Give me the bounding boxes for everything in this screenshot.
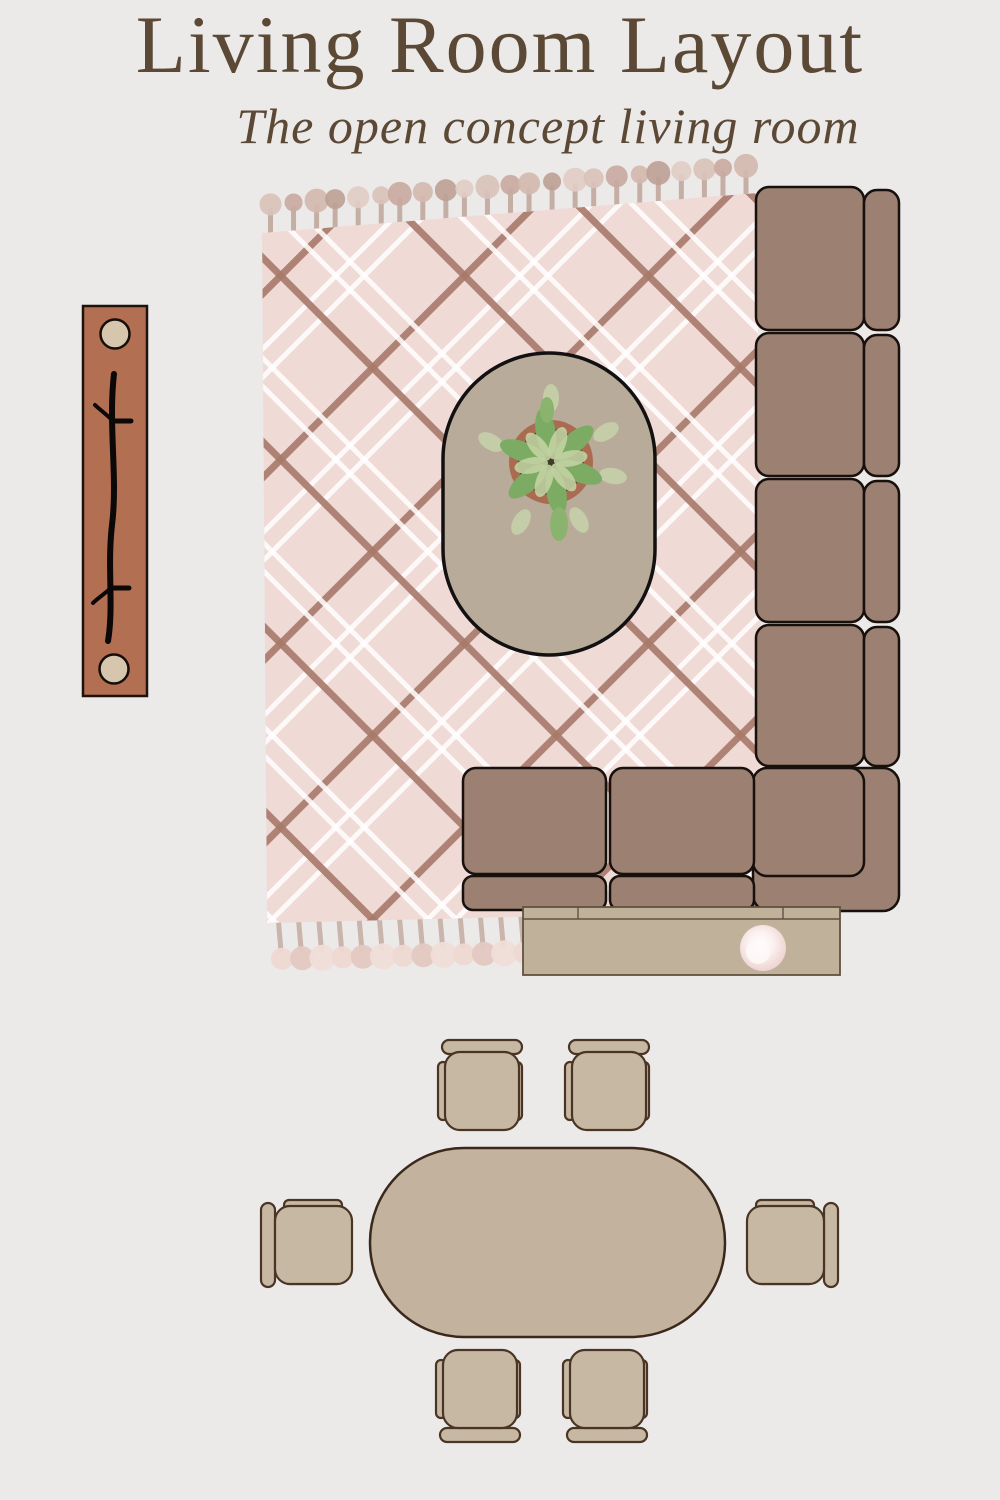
dining-chair-left	[261, 1200, 352, 1287]
sideboard-lamp-top	[101, 320, 130, 349]
sofa-module	[610, 768, 754, 910]
dining-set	[261, 1040, 838, 1442]
sofa-module	[756, 625, 899, 766]
sofa-module	[756, 479, 899, 622]
dining-chair-down	[563, 1350, 647, 1442]
dining-chair-down	[436, 1350, 520, 1442]
terracotta-sideboard	[83, 306, 147, 696]
console-table	[523, 907, 840, 975]
dining-chair-up	[565, 1040, 649, 1130]
sofa-module	[756, 333, 899, 476]
dining-table	[370, 1148, 725, 1337]
floor-plan-canvas	[0, 0, 1000, 1500]
sideboard-lamp-bottom	[100, 655, 129, 684]
console-top	[523, 907, 840, 975]
oval-coffee-table	[443, 353, 655, 655]
decor-bowl-highlight	[746, 940, 770, 964]
dining-chair-up	[438, 1040, 522, 1130]
sofa-corner-module	[753, 768, 899, 911]
dining-chair-right	[747, 1200, 838, 1287]
sofa-module	[756, 187, 899, 330]
sofa-module	[463, 768, 606, 910]
